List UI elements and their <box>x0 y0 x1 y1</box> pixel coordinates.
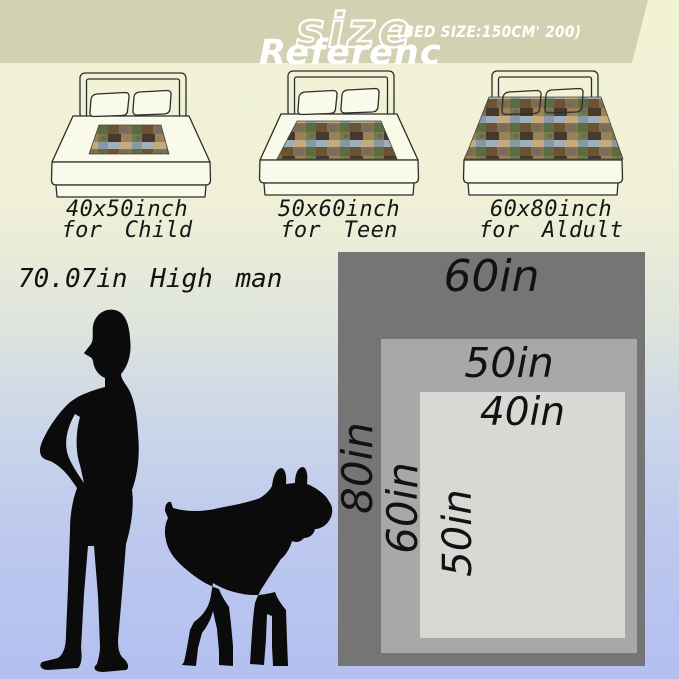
bed-front <box>464 160 623 183</box>
width-label-50in: 50in <box>381 339 637 387</box>
bed-size-teen: 50x60inch <box>244 199 434 220</box>
bed-audience-child: for Child <box>32 220 222 241</box>
blanket-small <box>89 125 169 154</box>
bed-label-adult: 60x80inch for Aldult <box>456 199 646 241</box>
blanket-medium <box>277 121 397 159</box>
size-reference-infographic: size (BED SIZE:150CM' 200) Referenc <box>0 0 679 679</box>
bed-audience-teen: for Teen <box>244 220 434 241</box>
comparison-silhouettes <box>20 298 355 679</box>
bed-base <box>468 183 618 195</box>
dog-silhouette <box>165 467 332 666</box>
bed-size-adult: 60x80inch <box>456 199 646 220</box>
man-silhouette <box>40 310 139 672</box>
bed-size-child: 40x50inch <box>32 199 222 220</box>
bed-base <box>56 185 206 197</box>
reference-banner: Referenc <box>259 33 442 73</box>
bed-front <box>260 160 419 183</box>
pillow-right <box>133 91 171 116</box>
bed-front <box>52 162 211 185</box>
bed-label-child: 40x50inch for Child <box>32 199 222 241</box>
width-label-40in: 40in <box>420 390 625 435</box>
bed-illustration-teen <box>248 68 428 200</box>
bed-illustration-child <box>40 70 220 202</box>
width-label-60in: 60in <box>338 251 645 302</box>
bed-label-teen: 50x60inch for Teen <box>244 199 434 241</box>
bed-base <box>264 183 414 195</box>
pillow-left <box>298 91 337 115</box>
height-label-60in: 60in <box>380 463 424 553</box>
bed-audience-adult: for Aldult <box>456 220 646 241</box>
pillow-right <box>341 89 379 114</box>
blanket-large <box>465 97 624 159</box>
man-height-note: 70.07in High man <box>18 264 282 294</box>
height-label-50in: 50in <box>436 488 480 578</box>
bed-illustration-adult <box>452 68 632 200</box>
pillow-left <box>90 93 129 117</box>
